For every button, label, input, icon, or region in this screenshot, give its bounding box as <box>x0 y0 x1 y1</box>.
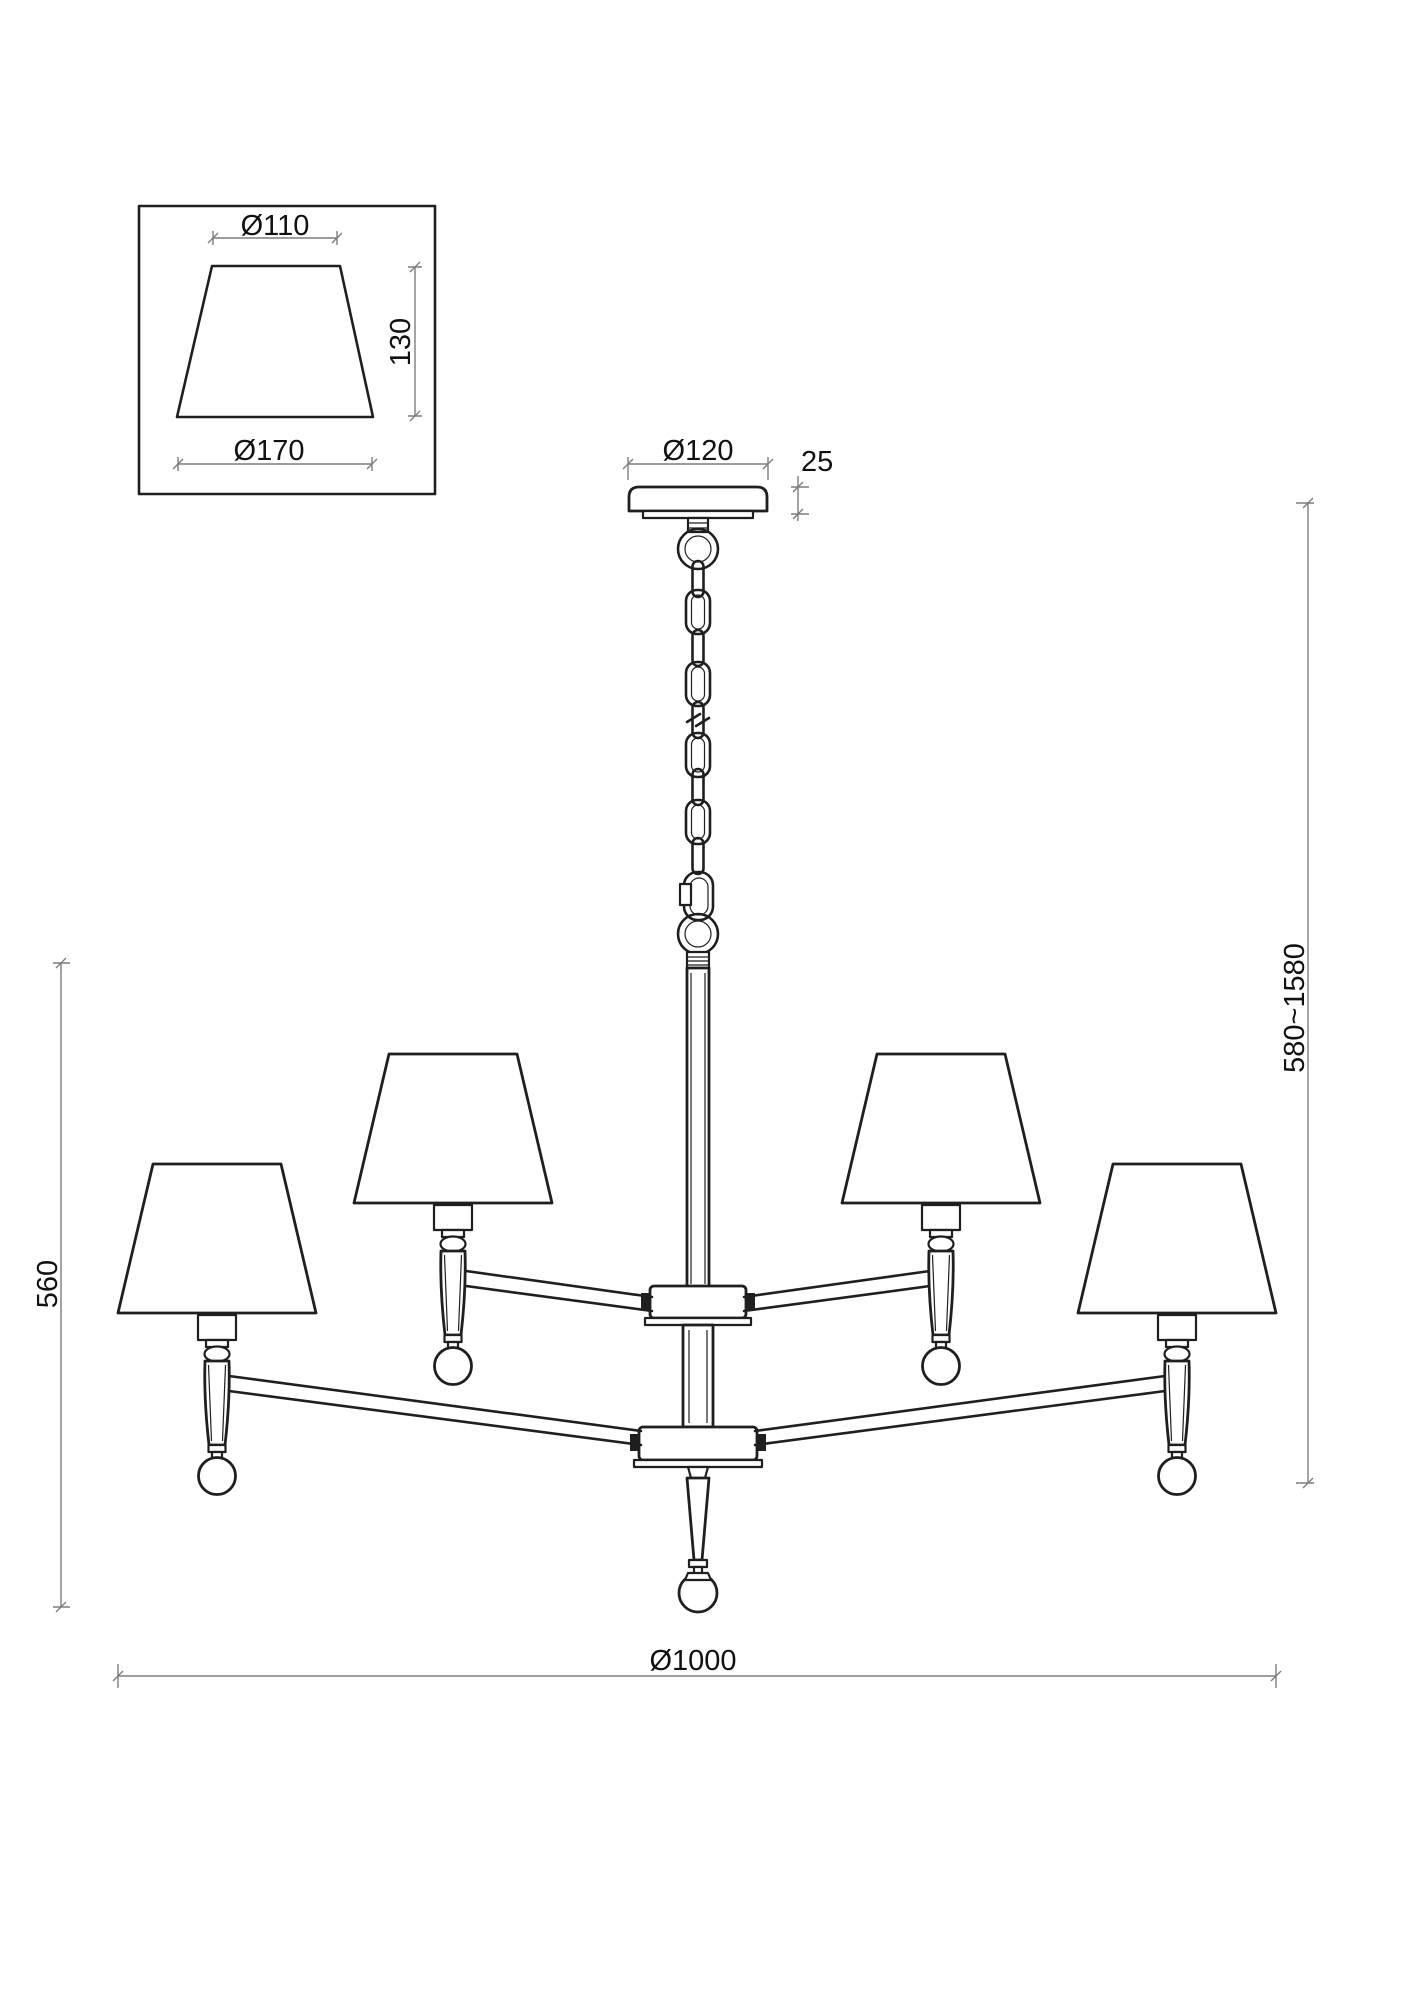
arm-upper-right <box>744 1271 930 1311</box>
dim-suspension-height: 580~1580 <box>1279 498 1314 1488</box>
upper-arm-hub <box>645 1286 751 1325</box>
finial-neck <box>688 1467 708 1478</box>
shade-detail-box: Ø110 130 Ø170 <box>139 206 435 494</box>
dim-shade-height: 130 <box>385 262 422 421</box>
lamp-inner-left <box>354 1054 552 1385</box>
shade-bottom-diameter-label: Ø170 <box>234 435 305 467</box>
column-collar <box>687 952 709 968</box>
center-column-upper <box>687 968 709 1288</box>
lower-arm-hub <box>634 1427 762 1467</box>
suspension-ring-top <box>678 529 718 569</box>
arm-lower-left <box>229 1376 641 1445</box>
technical-drawing-page: Ø110 130 Ø170 Ø120 25 580~1580 560 Ø1000 <box>0 0 1413 2000</box>
dim-body-diameter: Ø1000 <box>113 1645 1281 1688</box>
arm-lower-right <box>755 1376 1165 1445</box>
center-column-lower <box>683 1325 713 1427</box>
body-height-label: 560 <box>32 1260 64 1308</box>
chain-break-mark <box>687 714 709 726</box>
suspension-height-label: 580~1580 <box>1279 943 1311 1073</box>
dim-canopy-thickness: 25 <box>791 446 833 521</box>
dim-shade-bottom-diameter: Ø170 <box>173 435 377 471</box>
carabiner-lock-sleeve <box>680 884 691 905</box>
chain <box>686 561 710 874</box>
dim-body-height: 560 <box>32 958 70 1612</box>
ceiling-canopy <box>629 487 767 518</box>
finial <box>679 1467 717 1612</box>
dim-canopy-diameter: Ø120 <box>623 435 773 480</box>
finial-spike <box>687 1478 709 1560</box>
arm-upper-left <box>466 1271 652 1311</box>
lamp-inner-right <box>842 1054 1040 1385</box>
shade-height-label: 130 <box>385 318 417 366</box>
lamp-outer-left <box>118 1164 316 1495</box>
finial-ball-cap <box>685 1573 711 1580</box>
detail-shade-outline <box>177 266 373 417</box>
dim-shade-top-diameter: Ø110 <box>208 210 342 245</box>
shade-top-diameter-label: Ø110 <box>241 210 310 242</box>
lamp-outer-right <box>1078 1164 1276 1495</box>
canopy-thickness-label: 25 <box>801 446 833 478</box>
body-diameter-label: Ø1000 <box>649 1645 736 1677</box>
canopy-diameter-label: Ø120 <box>663 435 734 467</box>
